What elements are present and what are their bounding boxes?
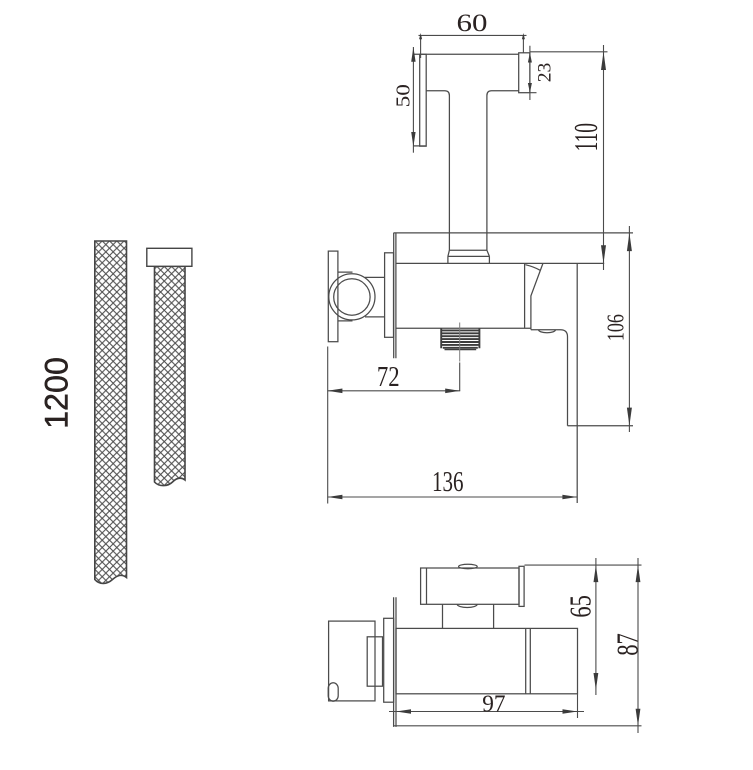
svg-text:97: 97 <box>482 691 505 718</box>
svg-text:72: 72 <box>377 361 400 393</box>
svg-text:50: 50 <box>392 84 414 107</box>
svg-text:110: 110 <box>566 123 604 151</box>
svg-text:60: 60 <box>457 9 488 37</box>
svg-text:136: 136 <box>432 467 464 498</box>
svg-text:65: 65 <box>563 595 597 617</box>
svg-text:23: 23 <box>535 63 556 83</box>
svg-text:106: 106 <box>602 314 629 341</box>
svg-text:1200: 1200 <box>39 357 75 429</box>
svg-text:87: 87 <box>610 633 644 656</box>
